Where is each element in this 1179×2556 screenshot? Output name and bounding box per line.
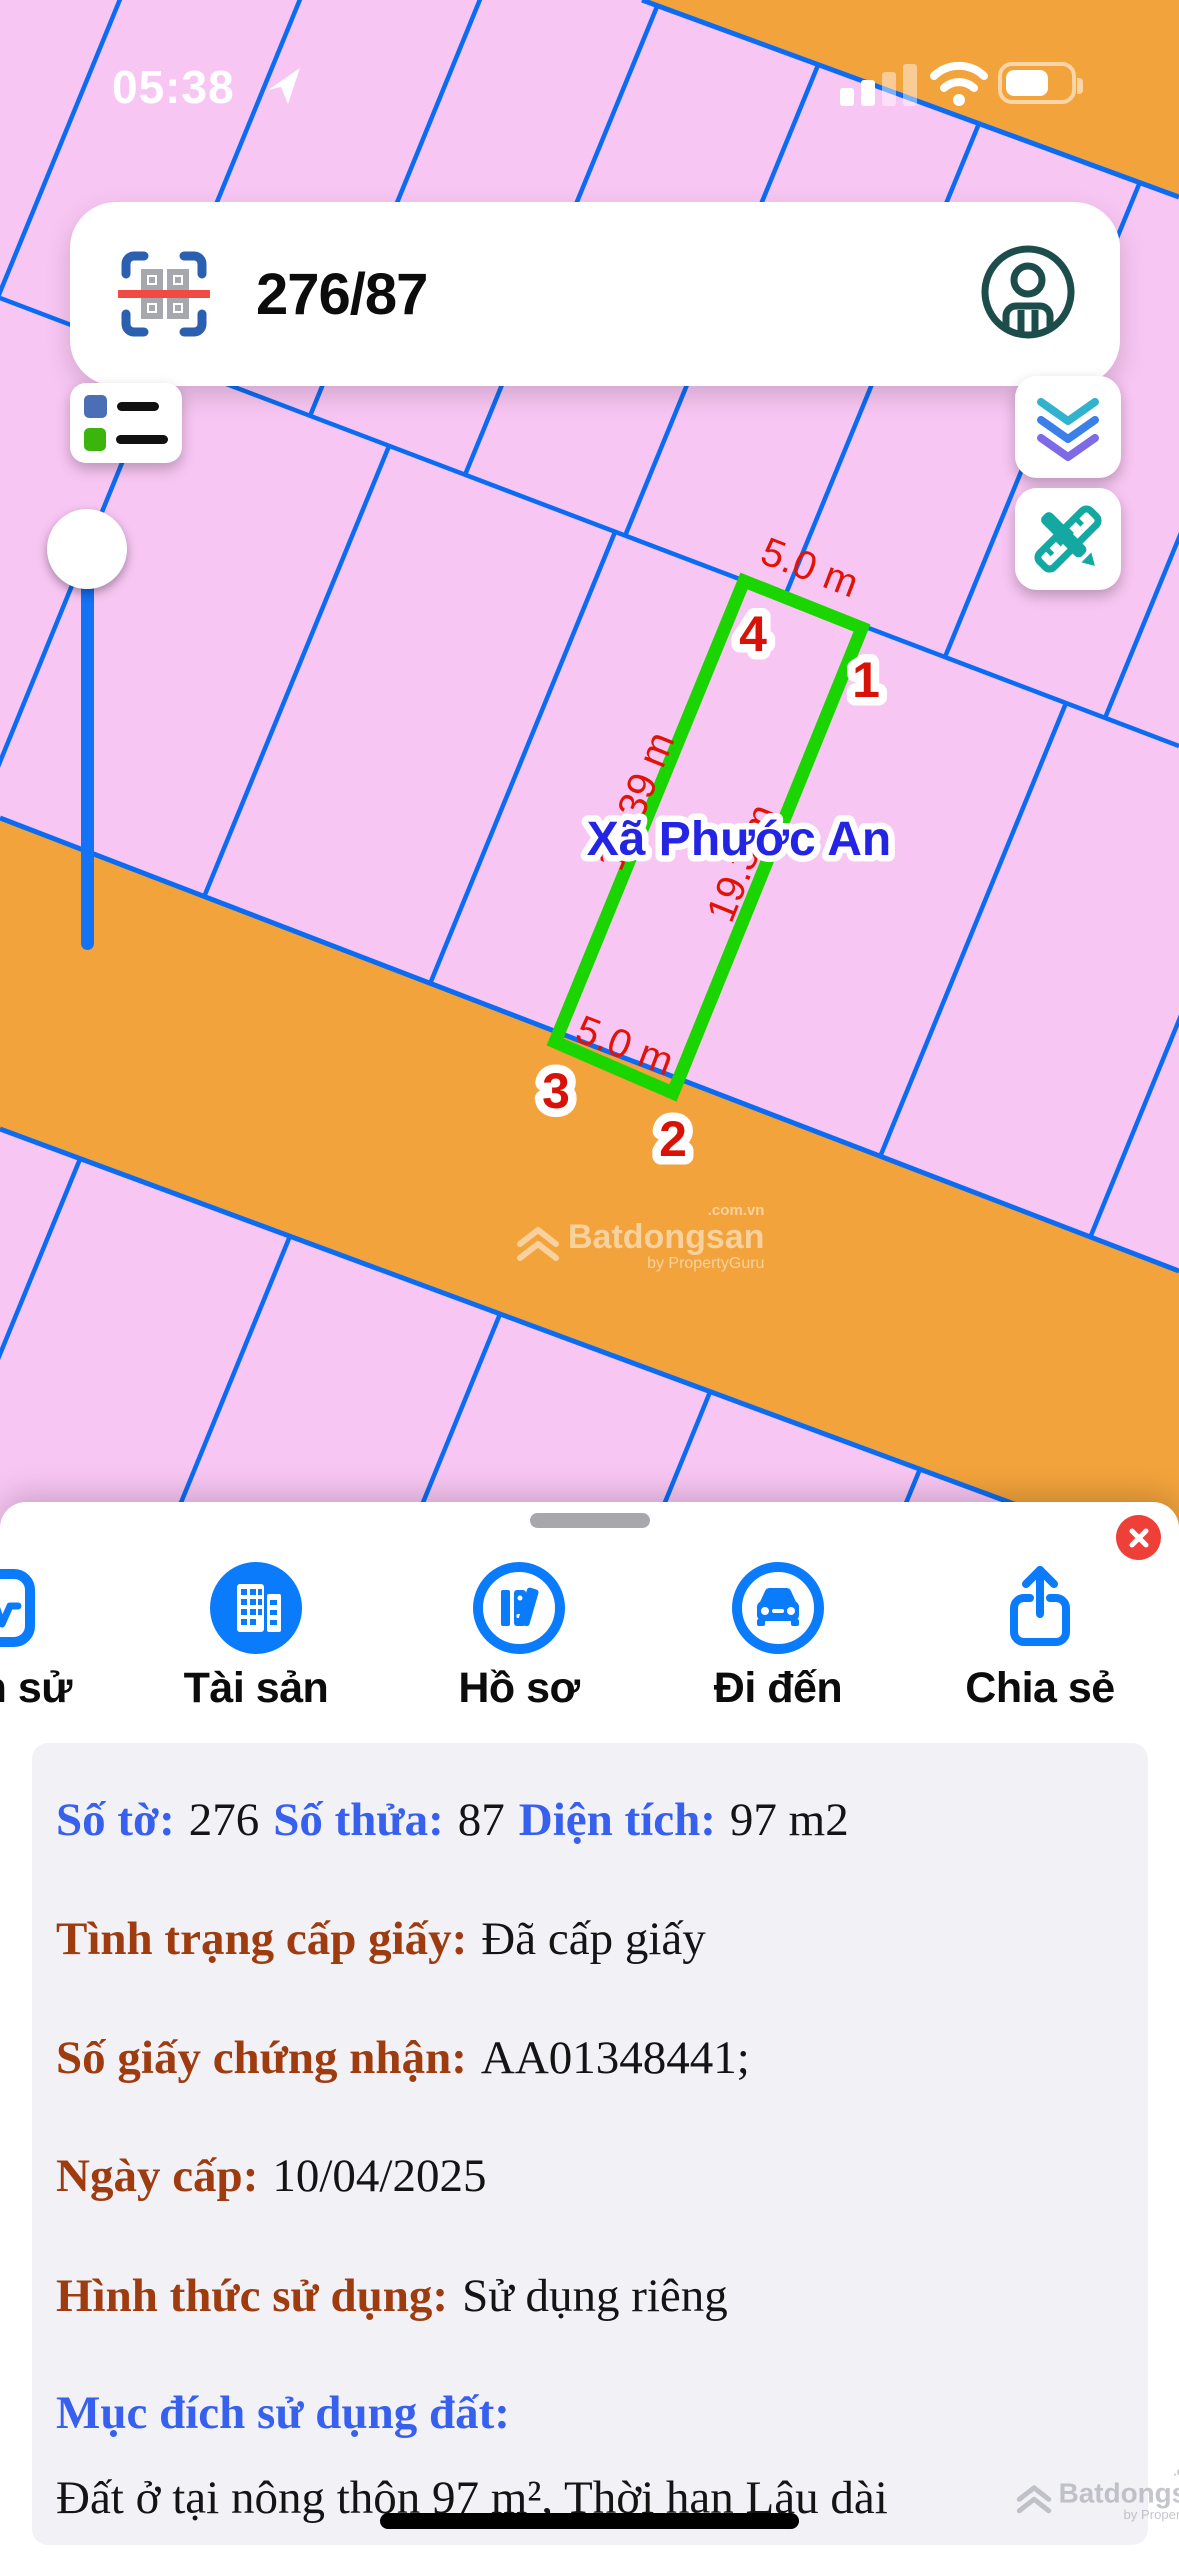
tab-label: Chia sẻ	[965, 1664, 1114, 1713]
buildings-icon	[210, 1560, 302, 1656]
info-label: Số thửa:	[273, 1794, 444, 1846]
info-label: Tình trạng cấp giấy:	[56, 1913, 467, 1965]
info-line-6: Mục đích sử dụng đất:	[56, 2386, 1136, 2440]
info-label: Số giấy chứng nhận:	[56, 2032, 467, 2084]
info-value: 87	[458, 1794, 505, 1846]
info-label: Hình thức sử dụng:	[56, 2270, 448, 2322]
info-label: Diện tích:	[519, 1794, 716, 1846]
search-query[interactable]: 276/87	[256, 261, 427, 328]
home-indicator[interactable]	[380, 2513, 799, 2529]
corner-label-1: 1	[852, 652, 880, 708]
search-bar[interactable]: 276/87	[70, 202, 1120, 386]
bottom-sheet: Lịch sử Tài sản	[0, 1502, 1179, 2556]
car-icon	[732, 1560, 824, 1656]
legend-row-blue	[84, 395, 168, 418]
tab-chia-se[interactable]: Chia sẻ	[954, 1560, 1126, 1713]
info-line-5: Hình thức sử dụng:Sử dụng riêng	[56, 2269, 1136, 2323]
tab-label: Đi đến	[714, 1664, 842, 1713]
tab-label: Tài sản	[184, 1664, 329, 1713]
corner-label-4: 4	[739, 606, 767, 662]
info-line-2: Tình trạng cấp giấy:Đã cấp giấy	[56, 1912, 1136, 1966]
legend-row-green	[84, 428, 168, 451]
legend-bar	[117, 402, 159, 411]
zoom-slider-knob[interactable]	[47, 509, 127, 589]
corner-label-3: 3	[542, 1063, 570, 1119]
legend-swatch-green	[84, 428, 106, 451]
layers-button[interactable]	[1015, 376, 1121, 478]
share-icon	[994, 1560, 1086, 1656]
info-label: Mục đích sử dụng đất:	[56, 2387, 510, 2439]
legend-button[interactable]	[70, 383, 182, 463]
battery-icon	[998, 62, 1076, 104]
info-value: 276	[189, 1794, 260, 1846]
info-label: Ngày cấp:	[56, 2150, 258, 2202]
location-arrow-icon	[264, 66, 304, 106]
info-line-1: Số tờ:276Số thửa:87Diện tích:97 m2	[56, 1793, 1136, 1847]
tab-label: Lịch sử	[0, 1664, 72, 1713]
info-line-3: Số giấy chứng nhận:AA01348441;	[56, 2031, 1136, 2085]
info-value: 10/04/2025	[272, 2150, 486, 2202]
drag-handle[interactable]	[530, 1513, 650, 1528]
info-label: Số tờ:	[56, 1794, 175, 1846]
activity-pulse-icon	[0, 1560, 42, 1656]
info-value: Đã cấp giấy	[481, 1913, 705, 1965]
tab-label: Hồ sơ	[458, 1664, 579, 1713]
wifi-icon	[928, 60, 990, 106]
info-value: Sử dụng riêng	[462, 2270, 728, 2322]
legend-bar	[116, 435, 168, 444]
qr-scan-icon[interactable]	[118, 248, 210, 340]
ruler-pencil-icon	[1028, 499, 1108, 579]
tab-tai-san[interactable]: Tài sản	[170, 1560, 342, 1713]
books-icon	[473, 1560, 565, 1656]
layers-icon	[1029, 388, 1107, 466]
measure-button[interactable]	[1015, 488, 1121, 590]
status-time: 05:38	[112, 60, 235, 114]
corner-label-2: 2	[659, 1111, 687, 1167]
tab-lich-su[interactable]: Lịch sử	[0, 1560, 82, 1713]
info-line-4: Ngày cấp:10/04/2025	[56, 2149, 1136, 2203]
info-value: AA01348441;	[481, 2032, 750, 2084]
battery-nub	[1077, 78, 1083, 94]
tab-ho-so[interactable]: Hồ sơ	[433, 1560, 605, 1713]
battery-fill	[1006, 70, 1048, 96]
close-button[interactable]	[1116, 1515, 1161, 1560]
close-icon	[1128, 1527, 1150, 1549]
zoom-slider-track[interactable]	[81, 548, 94, 950]
region-label: Xã Phước An	[587, 813, 892, 866]
parcel-info-panel: Số tờ:276Số thửa:87Diện tích:97 m2 Tình …	[32, 1743, 1148, 2545]
info-value: 97 m2	[730, 1794, 849, 1846]
phone-screen: 5.0 m 19.39 m 19.3 m 5.0 m Xã Phước An 4…	[0, 0, 1179, 2556]
tab-di-den[interactable]: Đi đến	[692, 1560, 864, 1713]
account-icon[interactable]	[980, 244, 1076, 345]
legend-swatch-blue	[84, 395, 107, 418]
signal-bars-icon	[840, 60, 920, 106]
